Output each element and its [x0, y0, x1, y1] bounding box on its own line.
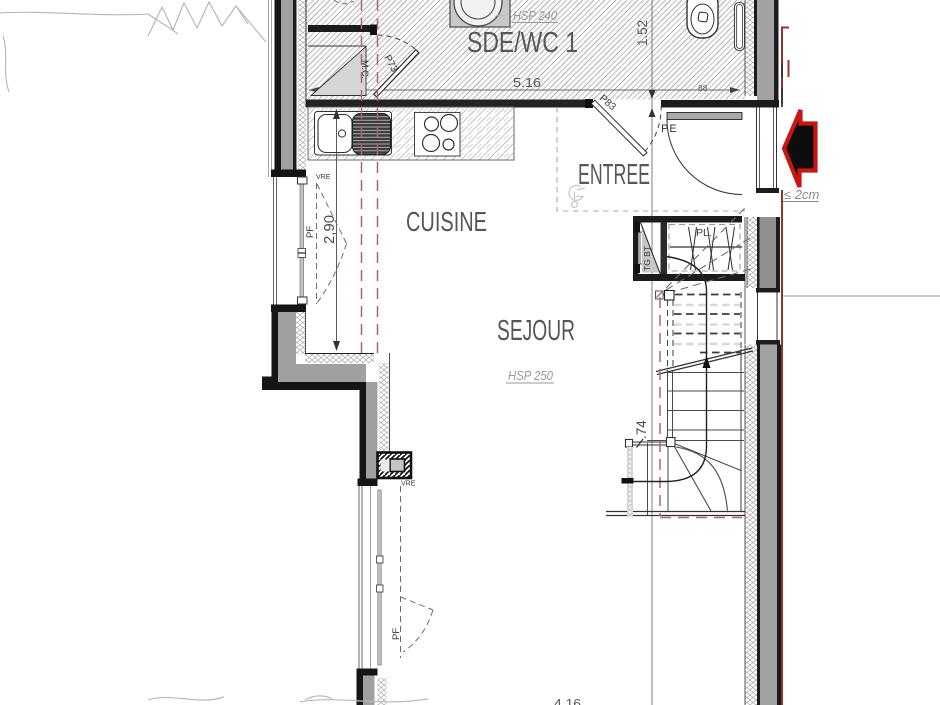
svg-text:PF: PF	[305, 226, 316, 238]
svg-text:VRE: VRE	[401, 481, 416, 488]
svg-text:5.16: 5.16	[513, 75, 541, 90]
svg-text:TG BT: TG BT	[642, 246, 652, 271]
svg-text:PE: PE	[661, 123, 678, 135]
svg-text:HSP 240: HSP 240	[513, 9, 557, 23]
svg-text:CUISINE: CUISINE	[406, 206, 487, 237]
svg-text:PF: PF	[391, 628, 402, 640]
svg-text:SDE/WC 1: SDE/WC 1	[467, 27, 578, 59]
svg-text:≤ 2cm: ≤ 2cm	[784, 187, 819, 202]
svg-text:SEJOUR: SEJOUR	[497, 315, 575, 347]
svg-text:VRE: VRE	[316, 174, 331, 181]
svg-text:HSP 250: HSP 250	[508, 368, 554, 383]
svg-text:4.16: 4.16	[554, 696, 581, 705]
svg-text:88: 88	[698, 83, 708, 93]
svg-text:ENTREE: ENTREE	[578, 159, 650, 191]
svg-text:.74: .74	[634, 420, 649, 439]
svg-text:1.52: 1.52	[634, 20, 650, 46]
svg-text:2,90: 2,90	[321, 215, 338, 244]
